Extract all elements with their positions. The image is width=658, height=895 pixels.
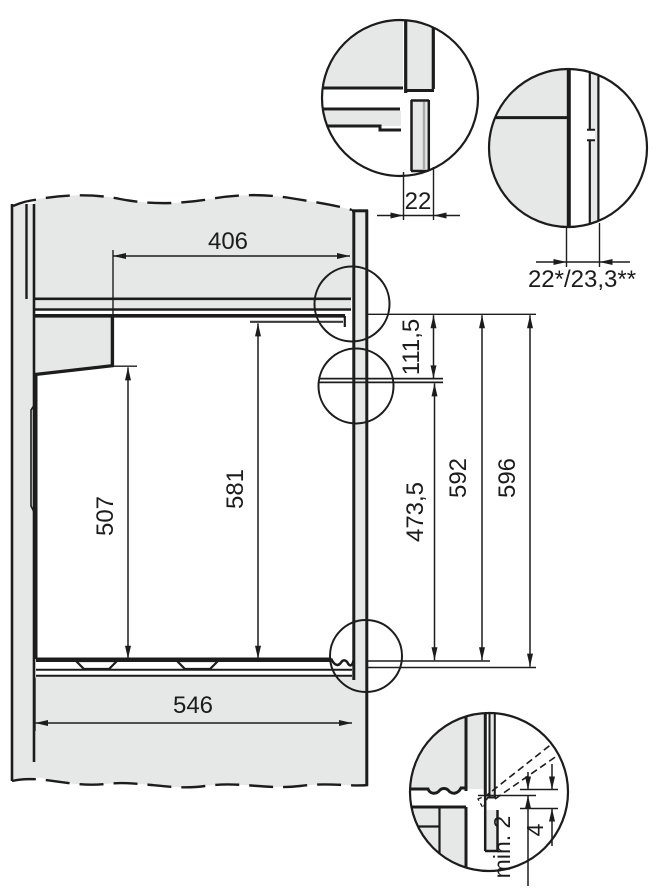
- dim-111-5-label: 111,5: [398, 319, 425, 376]
- dim-4-label: 4: [522, 823, 548, 836]
- dim-507-label: 507: [92, 496, 119, 536]
- technical-drawing-page: 406 546 111,5 473,5 592 596 507 581: [0, 0, 658, 895]
- dim-2233-label: 22*/23,3**: [528, 266, 636, 293]
- front-trim-strip: [355, 211, 367, 681]
- dim-22-label: 22: [405, 188, 432, 215]
- dim-406-label: 406: [208, 228, 248, 255]
- installation-dimension-diagram: 406 546 111,5 473,5 592 596 507 581: [0, 0, 658, 895]
- dim-min2-label: min. 2: [489, 816, 515, 879]
- dim-546-label: 546: [173, 692, 213, 719]
- dim-596-label: 596: [494, 458, 521, 498]
- dim-581-label: 581: [222, 469, 249, 509]
- floor-support-foot-rear: [76, 661, 117, 669]
- top-recess-band: [34, 300, 351, 308]
- dim-473-5-label: 473,5: [402, 482, 429, 542]
- top-cabinet-mass: [34, 195, 352, 298]
- floor-support-foot-front: [177, 661, 218, 669]
- dim-592-label: 592: [445, 458, 472, 498]
